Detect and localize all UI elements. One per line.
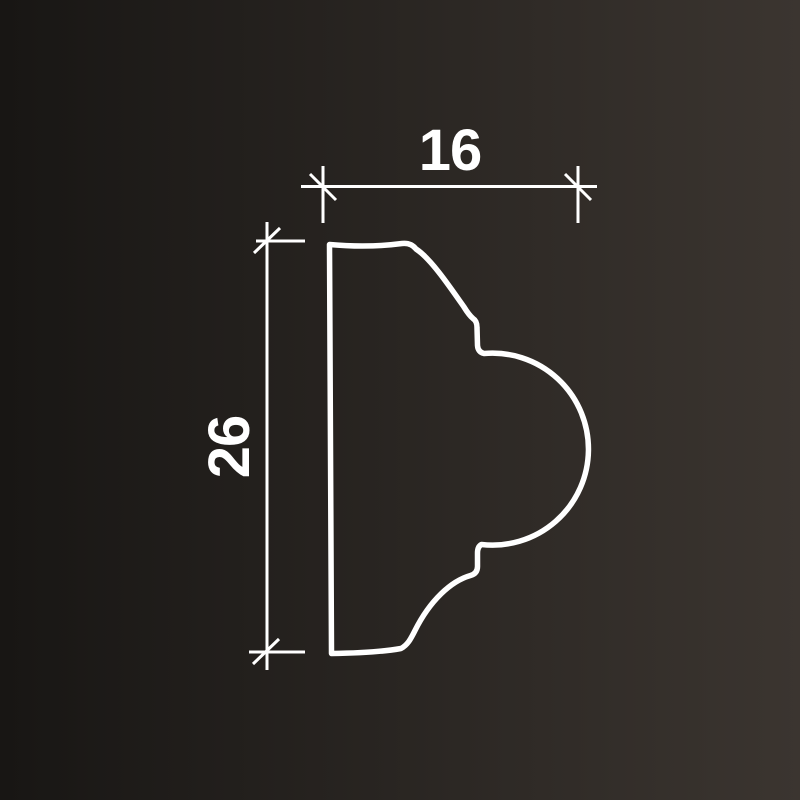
technical-drawing-svg: 16 26 — [0, 0, 800, 800]
width-dimension-label: 16 — [419, 118, 482, 183]
drawing-canvas: 16 26 — [0, 0, 800, 800]
background — [0, 0, 800, 800]
height-dimension-label: 26 — [197, 416, 262, 479]
